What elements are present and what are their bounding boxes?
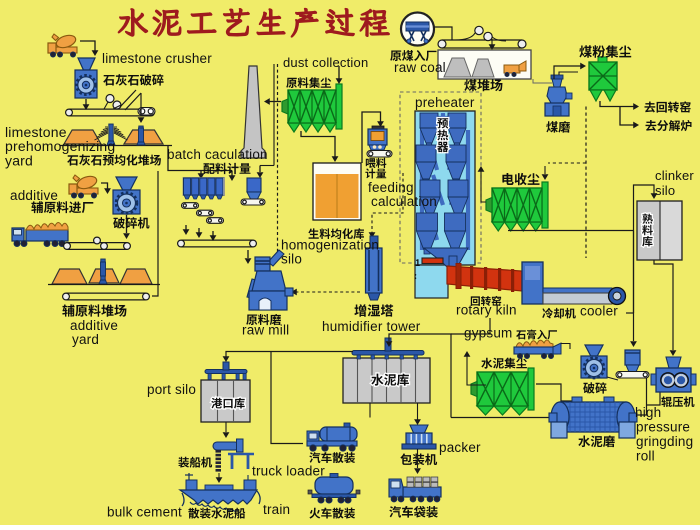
svg-text:raw mill: raw mill (242, 323, 289, 338)
svg-text:dust collection: dust collection (283, 55, 368, 70)
svg-text:feeding: feeding (368, 180, 414, 195)
svg-text:bulk cement: bulk cement (107, 505, 182, 520)
svg-text:humidifier tower: humidifier tower (322, 319, 421, 334)
svg-text:yard: yard (72, 332, 99, 347)
svg-text:yard: yard (5, 153, 33, 169)
svg-text:homogenization: homogenization (281, 238, 379, 253)
svg-text:gringding: gringding (636, 434, 693, 449)
svg-text:rotary kiln: rotary kiln (456, 303, 517, 318)
svg-text:packer: packer (439, 440, 481, 455)
svg-text:raw coal: raw coal (394, 60, 446, 75)
svg-text:preheater: preheater (415, 95, 475, 110)
svg-text:cooler: cooler (580, 304, 618, 319)
svg-text:calculation: calculation (371, 194, 437, 209)
svg-text:limestone crusher: limestone crusher (102, 51, 212, 66)
svg-text:roll: roll (636, 449, 655, 464)
svg-text:silo: silo (281, 252, 302, 267)
svg-text:port silo: port silo (147, 382, 196, 397)
svg-text:additive: additive (70, 318, 118, 333)
svg-text:batch caculation: batch caculation (167, 147, 268, 162)
svg-text:clinker: clinker (655, 168, 694, 183)
svg-text:pressure: pressure (636, 420, 690, 435)
svg-text:high: high (635, 405, 661, 420)
svg-text:silo: silo (655, 183, 675, 198)
svg-text:gypsum: gypsum (464, 326, 512, 341)
svg-text:train: train (263, 502, 290, 517)
svg-text:additive: additive (10, 188, 58, 203)
svg-text:truck loader: truck loader (252, 464, 325, 479)
